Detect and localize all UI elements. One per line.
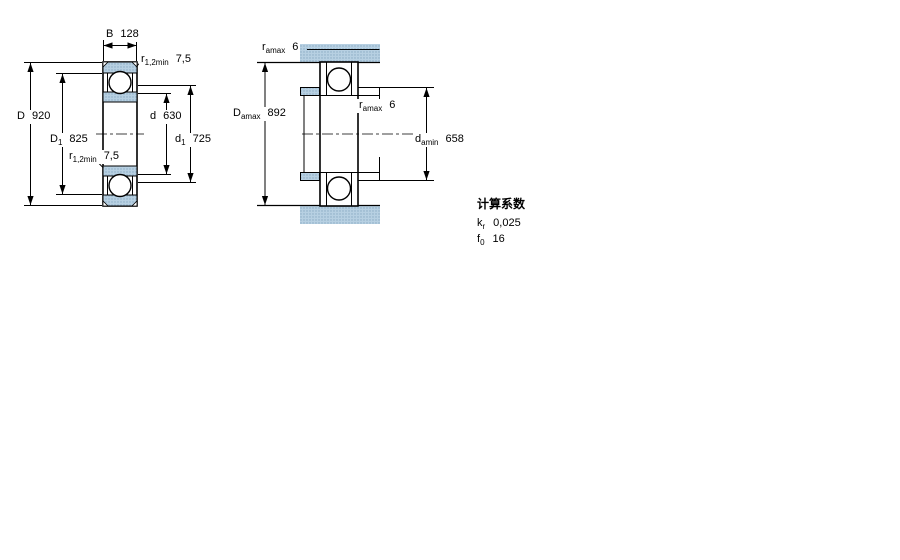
factor-subscript: 0 — [480, 238, 484, 247]
left-bearing-section — [96, 62, 144, 206]
dim-label-ramax-top: ramax6 — [260, 41, 300, 55]
dim-label-d1: d1725 — [173, 133, 213, 147]
dim-subscript: amax — [241, 112, 261, 121]
dim-label-B: B128 — [104, 28, 141, 42]
dim-value: 630 — [163, 110, 181, 122]
dim-subscript: amin — [421, 138, 438, 147]
dim-value: 825 — [69, 133, 87, 145]
dim-label-d: d630 — [148, 110, 183, 124]
dim-subscript: 1,2min — [145, 58, 169, 67]
dim-subscript: 1 — [181, 138, 185, 147]
dim-subscript: 1 — [58, 138, 62, 147]
dim-symbol: D — [50, 133, 58, 145]
calculation-factors-heading: 计算系数 — [477, 195, 525, 212]
factor-value: 0,025 — [493, 217, 521, 229]
dim-symbol: B — [106, 28, 113, 40]
bearing-ball — [328, 177, 351, 200]
factor-value: 16 — [493, 233, 505, 245]
housing-section-bottom — [300, 206, 380, 224]
housing-section-top — [300, 44, 380, 62]
dim-label-damin: damin658 — [413, 133, 466, 147]
factor-row-kr: kr0,025 — [477, 217, 521, 231]
dim-value: 7,5 — [104, 150, 119, 162]
dim-value: 892 — [268, 107, 286, 119]
dim-label-Damax: Damax892 — [231, 107, 288, 121]
dim-value: 6 — [389, 99, 395, 111]
dim-symbol: d — [150, 110, 156, 122]
dim-value: 7,5 — [176, 53, 191, 65]
bearing-drawing-svg — [0, 0, 900, 560]
dim-label-D1: D1825 — [48, 133, 90, 147]
dim-subscript: amax — [266, 46, 286, 55]
dim-symbol: D — [233, 107, 241, 119]
factor-subscript: r — [483, 222, 486, 231]
dim-label-r12min-top: r1,2min7,5 — [139, 53, 193, 67]
technical-drawing-page: B128 r1,2min7,5 D920 D1825 d630 d1725 r1… — [0, 0, 900, 560]
dim-value: 725 — [193, 133, 211, 145]
dim-symbol: D — [17, 110, 25, 122]
bearing-ball — [328, 68, 351, 91]
shaft-shoulder-bottom — [301, 173, 320, 181]
shaft-shoulder-top — [301, 88, 320, 96]
dim-value: 658 — [445, 133, 463, 145]
dim-label-r12min-bottom: r1,2min7,5 — [67, 150, 121, 164]
dim-label-ramax-middle: ramax6 — [357, 99, 397, 113]
dim-label-D: D920 — [15, 110, 52, 124]
dim-subscript: 1,2min — [73, 155, 97, 164]
bearing-ball — [109, 175, 131, 197]
dim-value: 920 — [32, 110, 50, 122]
dim-subscript: amax — [363, 104, 383, 113]
bearing-ball — [109, 72, 131, 94]
factor-row-f0: f016 — [477, 233, 505, 247]
dim-value: 6 — [292, 41, 298, 53]
dim-value: 128 — [120, 28, 138, 40]
